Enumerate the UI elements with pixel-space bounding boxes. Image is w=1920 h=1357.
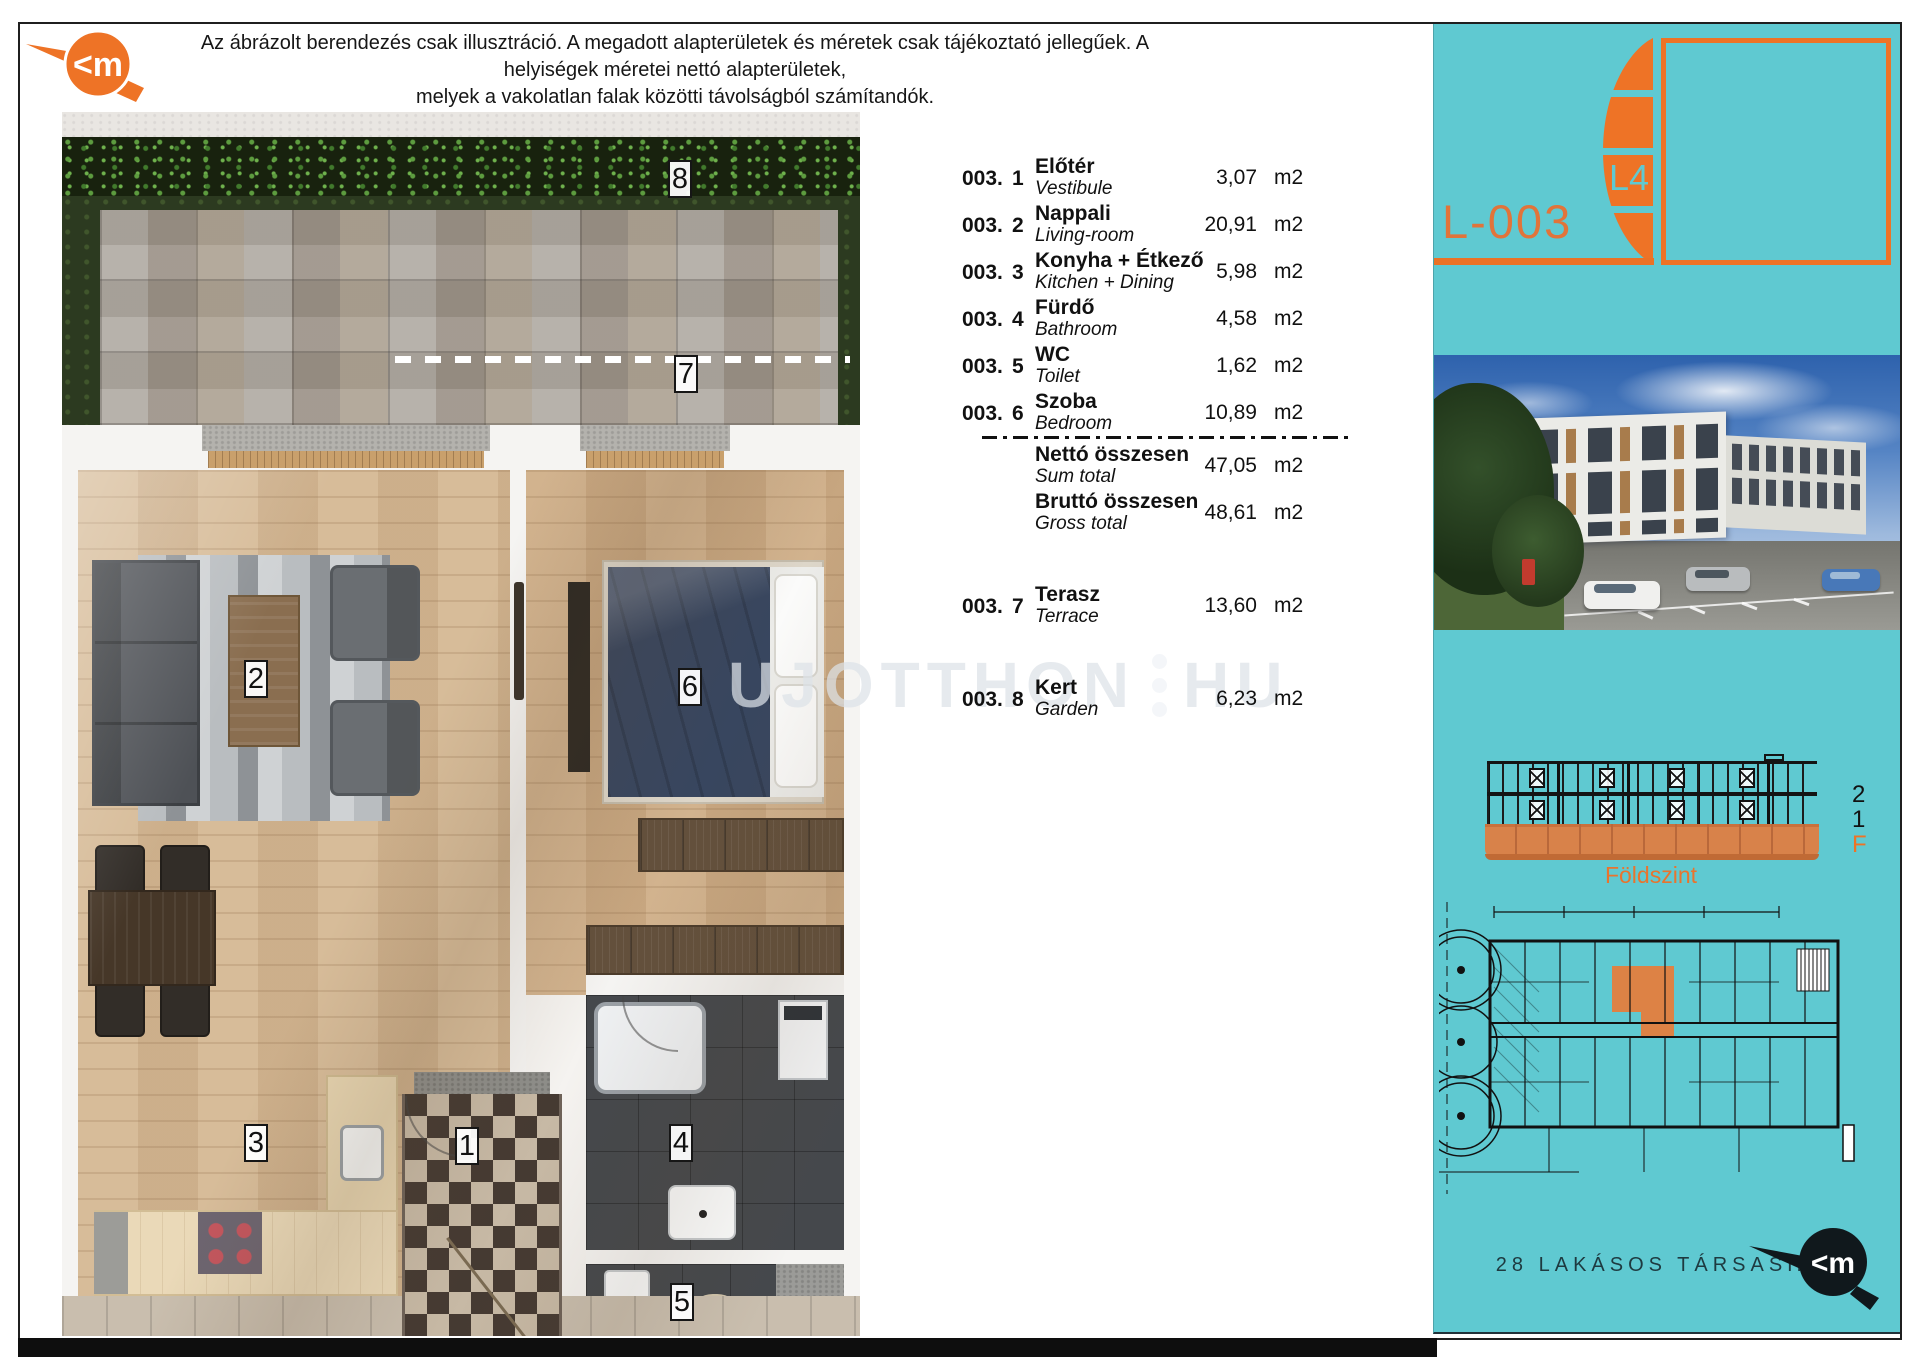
area-unit: m2 (1274, 296, 1303, 340)
tree (1492, 495, 1584, 607)
door-pad (580, 425, 730, 451)
room-code: 003. (962, 390, 1003, 434)
terrace-boundary-dashed-line (395, 356, 850, 363)
area-unit: m2 (1274, 490, 1303, 534)
table-row: 003. 5 WCToilet 1,62 m2 (962, 343, 1322, 387)
room-area: 10,89 (1152, 390, 1257, 434)
brand-logo-text: <m (73, 46, 123, 84)
room-number: 4 (1012, 296, 1024, 340)
garden-hedge (62, 137, 860, 196)
room-area: 3,07 (1152, 155, 1257, 199)
kitchen-mat (94, 1212, 128, 1294)
room-marker-2: 2 (244, 660, 268, 698)
area-unit: m2 (1274, 343, 1303, 387)
armchair (330, 565, 420, 661)
armchair (330, 700, 420, 796)
total-area: 47,05 (1152, 443, 1257, 487)
floor-label-ground: F (1852, 831, 1878, 859)
room-number: 1 (1012, 155, 1024, 199)
room-number: 2 (1012, 202, 1024, 246)
building-badge: L4 (1609, 157, 1649, 198)
area-unit: m2 (1274, 202, 1303, 246)
room-area: 4,58 (1152, 296, 1257, 340)
sofa (92, 560, 200, 806)
table-row: 003. 4 FürdőBathroom 4,58 m2 (962, 296, 1322, 340)
room-number: 7 (1012, 583, 1024, 627)
unit-id: L-003 (1442, 194, 1652, 249)
room-number: 8 (1012, 676, 1024, 720)
total-area: 48,61 (1152, 490, 1257, 534)
room-marker-8: 8 (668, 160, 692, 198)
building-block (1726, 435, 1866, 534)
kitchen-sink (340, 1125, 384, 1181)
washing-machine (778, 1000, 828, 1080)
car (1822, 569, 1880, 591)
room-area: 1,62 (1152, 343, 1257, 387)
door-threshold (208, 451, 484, 468)
room-marker-6: 6 (678, 668, 702, 706)
room-code: 003. (962, 583, 1003, 627)
interior-door (514, 582, 524, 700)
floor-name: Földszint (1551, 862, 1751, 889)
room-marker-5: 5 (670, 1283, 694, 1321)
room-marker-4: 4 (669, 1124, 693, 1162)
interior-wall (586, 975, 860, 995)
room-number: 5 (1012, 343, 1024, 387)
floor-label-1: 1 (1852, 806, 1878, 834)
section-roof-box (1764, 754, 1784, 761)
area-table: 003. 1 ElőtérVestibule 3,07 m2 003. 2 Na… (962, 155, 1362, 775)
disclaimer-text: Az ábrázolt berendezés csak illusztráció… (170, 30, 1180, 111)
room-marker-7: 7 (674, 355, 698, 393)
key-plan (1439, 902, 1889, 1202)
table-row: 003. 7 TeraszTerrace 13,60 m2 (962, 583, 1322, 627)
interior-wall (586, 1250, 860, 1264)
wardrobe (638, 818, 844, 872)
unit-frame-box (1661, 38, 1891, 265)
bedroom-bench (568, 582, 590, 772)
right-wall (844, 425, 860, 1336)
builder-logo-text: <m (1811, 1247, 1855, 1280)
car (1584, 581, 1660, 609)
cooktop (198, 1212, 262, 1274)
section-ground-floor-base (1485, 854, 1819, 860)
playground-item (1522, 559, 1535, 585)
bathroom-sink (668, 1185, 736, 1240)
door-threshold (586, 451, 724, 468)
door-pad (202, 425, 490, 451)
table-row: 003. 8 KertGarden 6,23 m2 (962, 676, 1322, 720)
brand-logo-icon: <m (22, 24, 152, 106)
terrace-stone-paving (100, 210, 838, 425)
table-row: 003. 6 SzobaBedroom 10,89 m2 (962, 390, 1322, 434)
unit-underline (1434, 258, 1654, 265)
area-unit: m2 (1274, 583, 1303, 627)
builder-logo-icon: <m (1749, 1216, 1879, 1316)
left-wall (62, 425, 78, 1336)
bottom-bar (18, 1338, 1437, 1357)
room-marker-3: 3 (244, 1124, 268, 1162)
car (1686, 567, 1750, 591)
entry-threshold (414, 1072, 550, 1094)
totals-divider-line (982, 436, 1350, 439)
room-area: 6,23 (1152, 676, 1257, 720)
table-row-net-total: Nettó összesenSum total 47,05 m2 (962, 443, 1322, 487)
sidewalk-top (62, 112, 860, 137)
sidebar: L4 L-003 (1433, 24, 1900, 1334)
datasheet: <m Az ábrázolt berendezés csak illusztrá… (0, 0, 1920, 1357)
area-unit: m2 (1274, 155, 1303, 199)
room-code: 003. (962, 155, 1003, 199)
room-code: 003. (962, 296, 1003, 340)
room-area: 5,98 (1152, 249, 1257, 293)
table-row: 003. 1 ElőtérVestibule 3,07 m2 (962, 155, 1322, 199)
section-ground-floor-highlight (1485, 824, 1819, 858)
dining-table (88, 890, 216, 986)
room-code: 003. (962, 343, 1003, 387)
room-number: 3 (1012, 249, 1024, 293)
table-row: 003. 2 NappaliLiving-room 20,91 m2 (962, 202, 1322, 246)
room-area: 13,60 (1152, 583, 1257, 627)
wardrobe (586, 925, 844, 975)
room-code: 003. (962, 676, 1003, 720)
building-photo (1434, 355, 1901, 630)
area-unit: m2 (1274, 249, 1303, 293)
room-number: 6 (1012, 390, 1024, 434)
table-row-gross-total: Bruttó összesenGross total 48,61 m2 (962, 490, 1322, 534)
room-marker-1: 1 (455, 1127, 479, 1165)
room-code: 003. (962, 202, 1003, 246)
room-area: 20,91 (1152, 202, 1257, 246)
area-unit: m2 (1274, 390, 1303, 434)
room-code: 003. (962, 249, 1003, 293)
area-unit: m2 (1274, 676, 1303, 720)
floor-label-2: 2 (1852, 781, 1878, 809)
area-unit: m2 (1274, 443, 1303, 487)
table-row: 003. 3 Konyha + ÉtkezőKitchen + Dining 5… (962, 249, 1322, 293)
